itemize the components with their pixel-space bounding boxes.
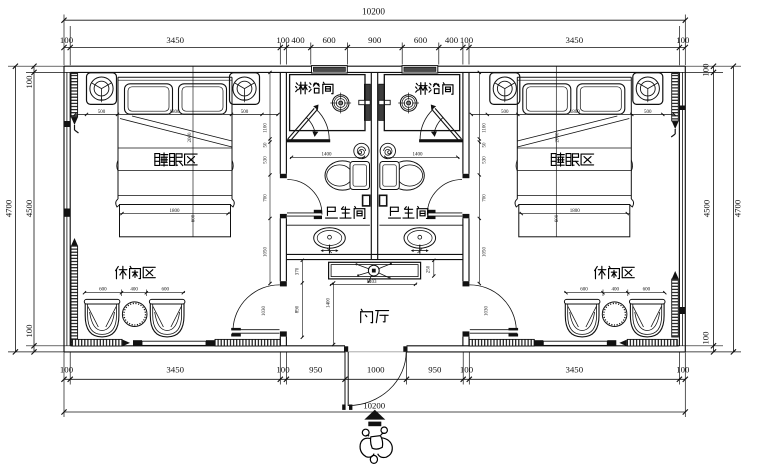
svg-text:100: 100 — [276, 35, 290, 45]
svg-text:1100: 1100 — [483, 123, 488, 133]
svg-text:4500: 4500 — [702, 199, 712, 217]
svg-text:1400: 1400 — [413, 153, 424, 158]
svg-text:1800: 1800 — [170, 110, 181, 115]
svg-text:600: 600 — [322, 35, 336, 45]
svg-text:600: 600 — [580, 287, 588, 292]
svg-text:4700: 4700 — [4, 199, 14, 217]
svg-text:50: 50 — [483, 142, 488, 148]
svg-text:1400: 1400 — [327, 298, 332, 309]
svg-text:400: 400 — [445, 35, 459, 45]
svg-text:100: 100 — [24, 324, 34, 338]
svg-text:1800: 1800 — [170, 209, 181, 214]
svg-text:100: 100 — [676, 35, 690, 45]
svg-text:1403: 1403 — [367, 280, 378, 285]
svg-text:700: 700 — [483, 194, 488, 202]
svg-text:100: 100 — [60, 35, 74, 45]
svg-text:100: 100 — [701, 331, 711, 345]
svg-text:250: 250 — [427, 265, 432, 273]
svg-text:400: 400 — [291, 35, 305, 45]
svg-text:1000: 1000 — [367, 365, 385, 375]
svg-text:10200: 10200 — [363, 401, 386, 411]
svg-text:600: 600 — [414, 35, 428, 45]
svg-text:2000: 2000 — [556, 132, 561, 143]
svg-text:3450: 3450 — [166, 365, 184, 375]
svg-text:100: 100 — [460, 365, 474, 375]
svg-text:100: 100 — [676, 365, 690, 375]
svg-text:4700: 4700 — [733, 199, 743, 217]
svg-text:1800: 1800 — [570, 110, 581, 115]
svg-text:400: 400 — [130, 287, 138, 292]
svg-text:1800: 1800 — [570, 209, 581, 214]
svg-text:370: 370 — [296, 267, 301, 275]
svg-text:950: 950 — [428, 365, 442, 375]
svg-text:1100: 1100 — [264, 123, 269, 133]
svg-text:500: 500 — [501, 110, 509, 115]
svg-text:50: 50 — [264, 142, 269, 148]
svg-text:600: 600 — [191, 214, 196, 222]
svg-text:530: 530 — [483, 156, 488, 164]
svg-text:890: 890 — [296, 305, 301, 313]
svg-text:100: 100 — [701, 63, 711, 77]
svg-text:400: 400 — [611, 287, 619, 292]
svg-text:600: 600 — [643, 287, 651, 292]
svg-text:3450: 3450 — [566, 35, 584, 45]
svg-text:4500: 4500 — [24, 199, 34, 217]
svg-text:600: 600 — [99, 287, 107, 292]
svg-text:100: 100 — [60, 365, 74, 375]
svg-text:500: 500 — [98, 110, 106, 115]
svg-text:500: 500 — [241, 110, 249, 115]
svg-text:900: 900 — [368, 35, 382, 45]
svg-text:3450: 3450 — [566, 365, 584, 375]
svg-text:1400: 1400 — [322, 153, 333, 158]
svg-text:500: 500 — [644, 110, 652, 115]
svg-text:1030: 1030 — [262, 306, 267, 317]
svg-text:530: 530 — [264, 156, 269, 164]
svg-text:600: 600 — [555, 214, 560, 222]
svg-text:100: 100 — [24, 75, 34, 89]
svg-text:100: 100 — [460, 35, 474, 45]
svg-text:2000: 2000 — [188, 132, 193, 143]
svg-text:700: 700 — [264, 194, 269, 202]
svg-text:3450: 3450 — [166, 35, 184, 45]
svg-text:950: 950 — [309, 365, 323, 375]
svg-text:100: 100 — [276, 365, 290, 375]
svg-text:1050: 1050 — [264, 247, 269, 258]
svg-text:600: 600 — [162, 287, 170, 292]
svg-text:10200: 10200 — [362, 7, 385, 17]
svg-text:1030: 1030 — [485, 306, 490, 317]
svg-text:1050: 1050 — [483, 247, 488, 258]
